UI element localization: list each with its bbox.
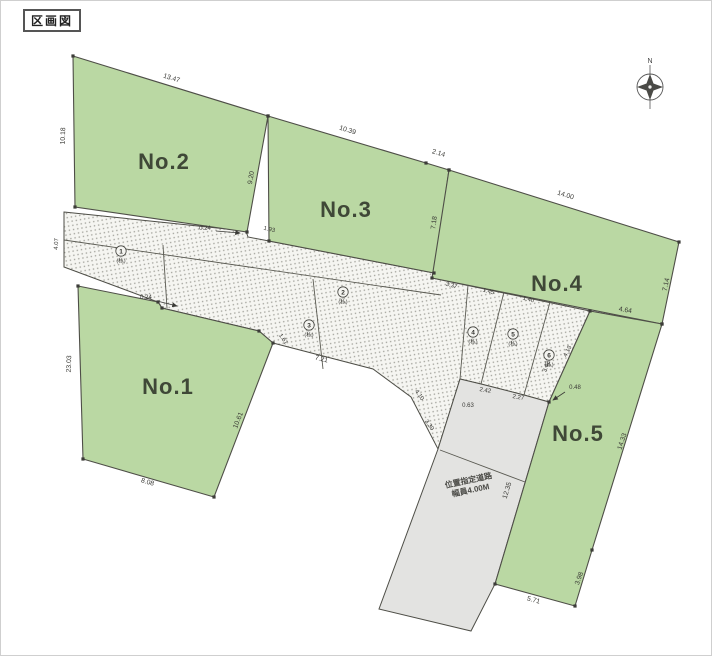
parcel-mark-3: 3 (私) <box>304 320 314 339</box>
vertex-dot <box>588 309 591 312</box>
vertex-dot <box>257 329 260 332</box>
parcel-mark-1: 1 (私) <box>116 246 126 265</box>
parcel-mark-4-note: (私) <box>468 338 477 346</box>
dim-no1-left: 23.03 <box>66 355 74 372</box>
parcel-mark-1-note: (私) <box>116 257 125 265</box>
plan-title-box: 区画図 <box>23 9 81 32</box>
parcel-mark-5-num: 5 <box>511 331 515 338</box>
parcel-mark-2: 2 (私) <box>338 287 348 306</box>
dim-no2-left: 10.18 <box>60 127 68 144</box>
dim-jog-top: 0.24 <box>199 226 211 232</box>
vertex-dot <box>156 300 159 303</box>
vertex-dot <box>71 54 74 57</box>
parcel-mark-2-note: (私) <box>338 298 347 306</box>
dim-no4-top: 14.00 <box>556 190 575 202</box>
parcel-mark-6-num: 6 <box>547 352 551 359</box>
subdivision-plan-drawing: No.2 No.3 No.4 No.1 No.5 位置指定道路 幅員4.00M … <box>1 1 712 656</box>
dim-jog-bottom: 0.24 <box>140 295 152 301</box>
lot-label-no5: No.5 <box>552 421 604 446</box>
parcel-mark-5-note: (私) <box>508 340 517 348</box>
lot-no2 <box>73 56 268 232</box>
parcel-mark-1-num: 1 <box>119 248 123 255</box>
parcel-mark-5: 5 (私) <box>508 329 518 348</box>
dim-no3-top-small: 2.14 <box>431 148 446 159</box>
vertex-dot <box>245 230 248 233</box>
vertex-dot <box>81 457 84 460</box>
parcel-mark-3-num: 3 <box>307 322 311 329</box>
parcel-mark-3-note: (私) <box>304 331 313 339</box>
dim-fan-offset: 0.48 <box>569 385 581 391</box>
parcel-mark-4-num: 4 <box>471 329 475 336</box>
vertex-dot <box>267 239 270 242</box>
compass-icon: N <box>637 58 663 109</box>
compass-hub <box>648 85 652 89</box>
vertex-dot <box>573 604 576 607</box>
dim-gray-top: 0.63 <box>462 403 474 409</box>
vertex-dot <box>677 240 680 243</box>
dim-no3-top: 10.39 <box>338 125 357 137</box>
dim-no5-bottom: 5.71 <box>526 595 541 605</box>
vertex-dot <box>547 400 550 403</box>
lot-label-no3: No.3 <box>320 197 372 222</box>
vertex-dot <box>447 168 450 171</box>
vertex-dot <box>424 161 427 164</box>
lot-label-no1: No.1 <box>142 374 194 399</box>
vertex-dot <box>266 114 269 117</box>
vertex-dot <box>493 582 496 585</box>
plan-canvas: 区画図 No.2 No.3 <box>0 0 712 656</box>
lot-label-no4: No.4 <box>531 271 583 296</box>
lot-label-no2: No.2 <box>138 149 190 174</box>
vertex-dot <box>660 322 663 325</box>
vertex-dot <box>160 306 163 309</box>
vertex-dot <box>432 271 435 274</box>
vertex-dot <box>590 548 593 551</box>
parcel-mark-2-num: 2 <box>341 289 345 296</box>
vertex-dot <box>212 495 215 498</box>
dim-no2-top: 13.47 <box>162 73 181 85</box>
dim-left-edge: 4.07 <box>54 237 60 250</box>
dim-no4-right: 7.14 <box>662 277 672 292</box>
parcel-mark-4: 4 (私) <box>468 327 478 346</box>
compass-north-label: N <box>647 58 652 65</box>
vertex-dot <box>430 276 433 279</box>
vertex-dot <box>73 205 76 208</box>
vertex-dot <box>271 341 274 344</box>
vertex-dot <box>76 284 79 287</box>
